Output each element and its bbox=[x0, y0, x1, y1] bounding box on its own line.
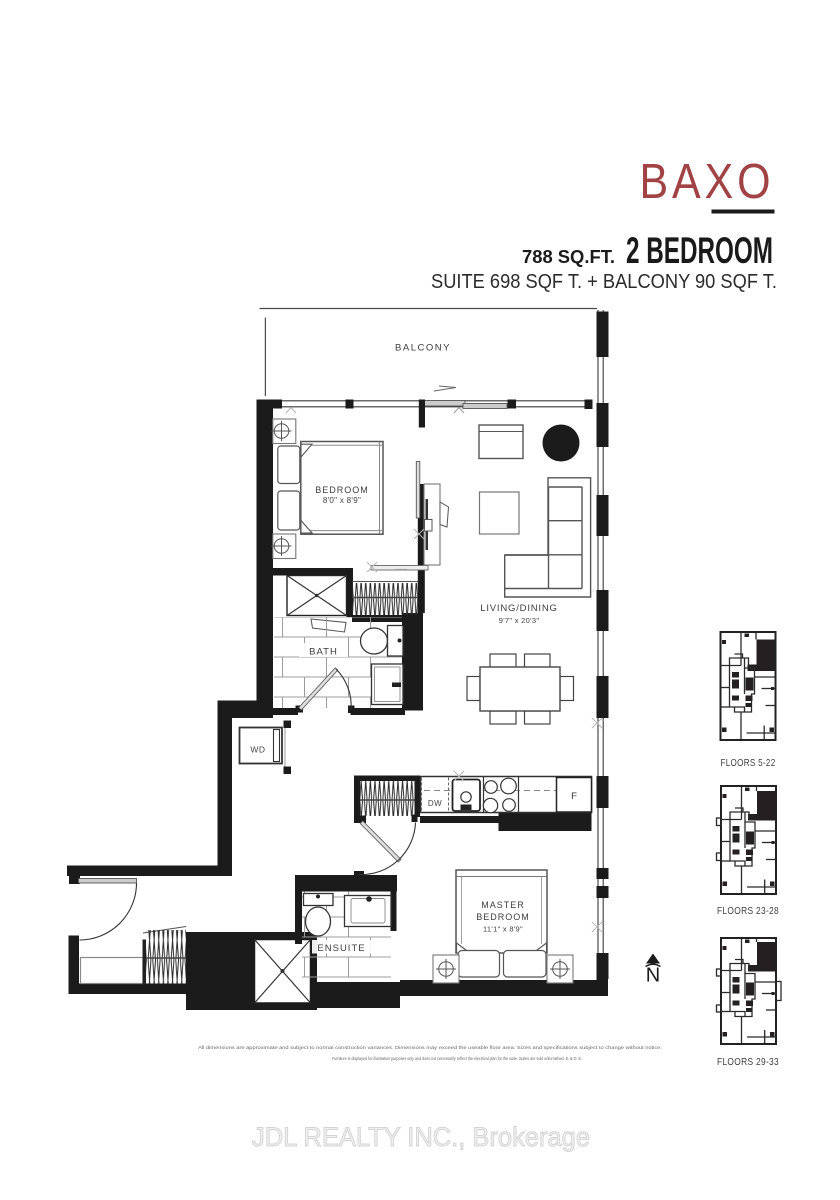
svg-text:FLOORS 29-33: FLOORS 29-33 bbox=[717, 1056, 779, 1068]
svg-text:F: F bbox=[571, 791, 577, 802]
svg-text:FLOORS 23-28: FLOORS 23-28 bbox=[717, 905, 779, 917]
svg-text:ENSUITE: ENSUITE bbox=[317, 943, 365, 954]
svg-text:N: N bbox=[646, 965, 660, 987]
svg-text:WD: WD bbox=[250, 745, 265, 755]
svg-text:8'0" x 8'9": 8'0" x 8'9" bbox=[323, 496, 361, 505]
svg-text:9'7" x 20'3": 9'7" x 20'3" bbox=[499, 616, 540, 625]
svg-text:DW: DW bbox=[428, 799, 442, 808]
svg-text:LIVING/DINING: LIVING/DINING bbox=[480, 603, 557, 614]
svg-text:2 BEDROOM: 2 BEDROOM bbox=[626, 230, 773, 271]
svg-text:All dimensions are approximate: All dimensions are approximate and subje… bbox=[198, 1045, 662, 1050]
svg-text:BEDROOM: BEDROOM bbox=[315, 485, 369, 495]
svg-text:BEDROOM: BEDROOM bbox=[476, 912, 530, 922]
svg-text:BATH: BATH bbox=[309, 647, 338, 658]
svg-text:Furniture is displayed for ill: Furniture is displayed for illustration … bbox=[332, 1056, 582, 1061]
svg-text:BAXO: BAXO bbox=[640, 154, 775, 209]
svg-text:FLOORS 5-22: FLOORS 5-22 bbox=[721, 757, 776, 769]
svg-text:JDL REALTY INC., Brokerage: JDL REALTY INC., Brokerage bbox=[252, 1122, 590, 1152]
svg-text:MASTER: MASTER bbox=[481, 900, 525, 910]
svg-text:BALCONY: BALCONY bbox=[395, 343, 451, 354]
svg-text:11'1" x 8'9": 11'1" x 8'9" bbox=[483, 925, 523, 934]
svg-text:SUITE 698 SQF T. + BALCONY 90: SUITE 698 SQF T. + BALCONY 90 SQF T. bbox=[431, 271, 777, 293]
svg-text:788 SQ.FT.: 788 SQ.FT. bbox=[522, 247, 615, 267]
